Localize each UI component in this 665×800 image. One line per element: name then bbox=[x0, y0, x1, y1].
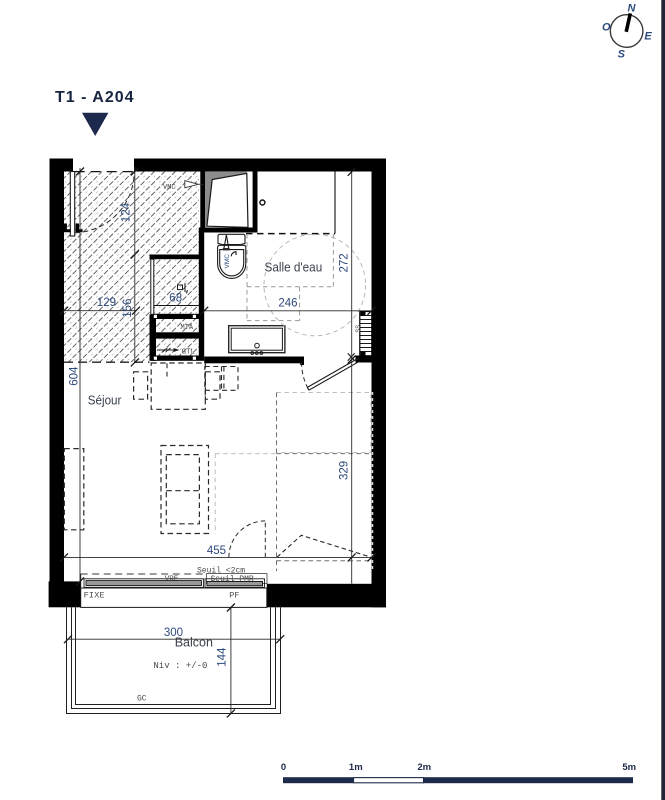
svg-text:O: O bbox=[602, 21, 611, 33]
svg-text:129: 129 bbox=[97, 297, 116, 309]
svg-text:0: 0 bbox=[281, 762, 286, 773]
svg-text:PF: PF bbox=[229, 591, 239, 601]
svg-text:Seuil <2cm: Seuil <2cm bbox=[197, 567, 245, 576]
svg-text:GTL: GTL bbox=[182, 348, 196, 356]
svg-text:Séjour: Séjour bbox=[88, 393, 122, 407]
svg-text:144: 144 bbox=[217, 647, 229, 667]
svg-text:Seuil PMR: Seuil PMR bbox=[211, 575, 254, 584]
svg-text:Salle d'eau: Salle d'eau bbox=[265, 260, 323, 274]
svg-text:T1 - A204: T1 - A204 bbox=[55, 89, 135, 106]
svg-text:329: 329 bbox=[339, 461, 351, 480]
svg-text:5m: 5m bbox=[622, 762, 636, 773]
svg-text:S: S bbox=[618, 49, 626, 61]
svg-text:272: 272 bbox=[339, 253, 351, 272]
svg-text:VRE: VRE bbox=[165, 576, 179, 584]
svg-text:SS: SS bbox=[355, 325, 362, 333]
svg-text:VMC: VMC bbox=[224, 254, 231, 269]
svg-text:Balcon: Balcon bbox=[175, 636, 213, 650]
svg-text:FIXE: FIXE bbox=[84, 591, 105, 601]
svg-text:Niv : +/-0: Niv : +/-0 bbox=[153, 661, 207, 671]
svg-text:1m: 1m bbox=[349, 762, 363, 773]
svg-text:GC: GC bbox=[137, 695, 147, 704]
svg-text:68: 68 bbox=[169, 293, 182, 305]
svg-text:MTA: MTA bbox=[181, 324, 194, 332]
svg-text:VMC: VMC bbox=[163, 184, 176, 192]
svg-text:2m: 2m bbox=[417, 762, 431, 773]
svg-text:455: 455 bbox=[207, 545, 226, 557]
svg-text:124: 124 bbox=[121, 202, 133, 222]
svg-text:604: 604 bbox=[69, 366, 81, 386]
svg-text:E: E bbox=[644, 31, 652, 43]
svg-text:156: 156 bbox=[122, 299, 134, 318]
svg-text:246: 246 bbox=[278, 298, 297, 310]
svg-text:N: N bbox=[628, 3, 637, 15]
